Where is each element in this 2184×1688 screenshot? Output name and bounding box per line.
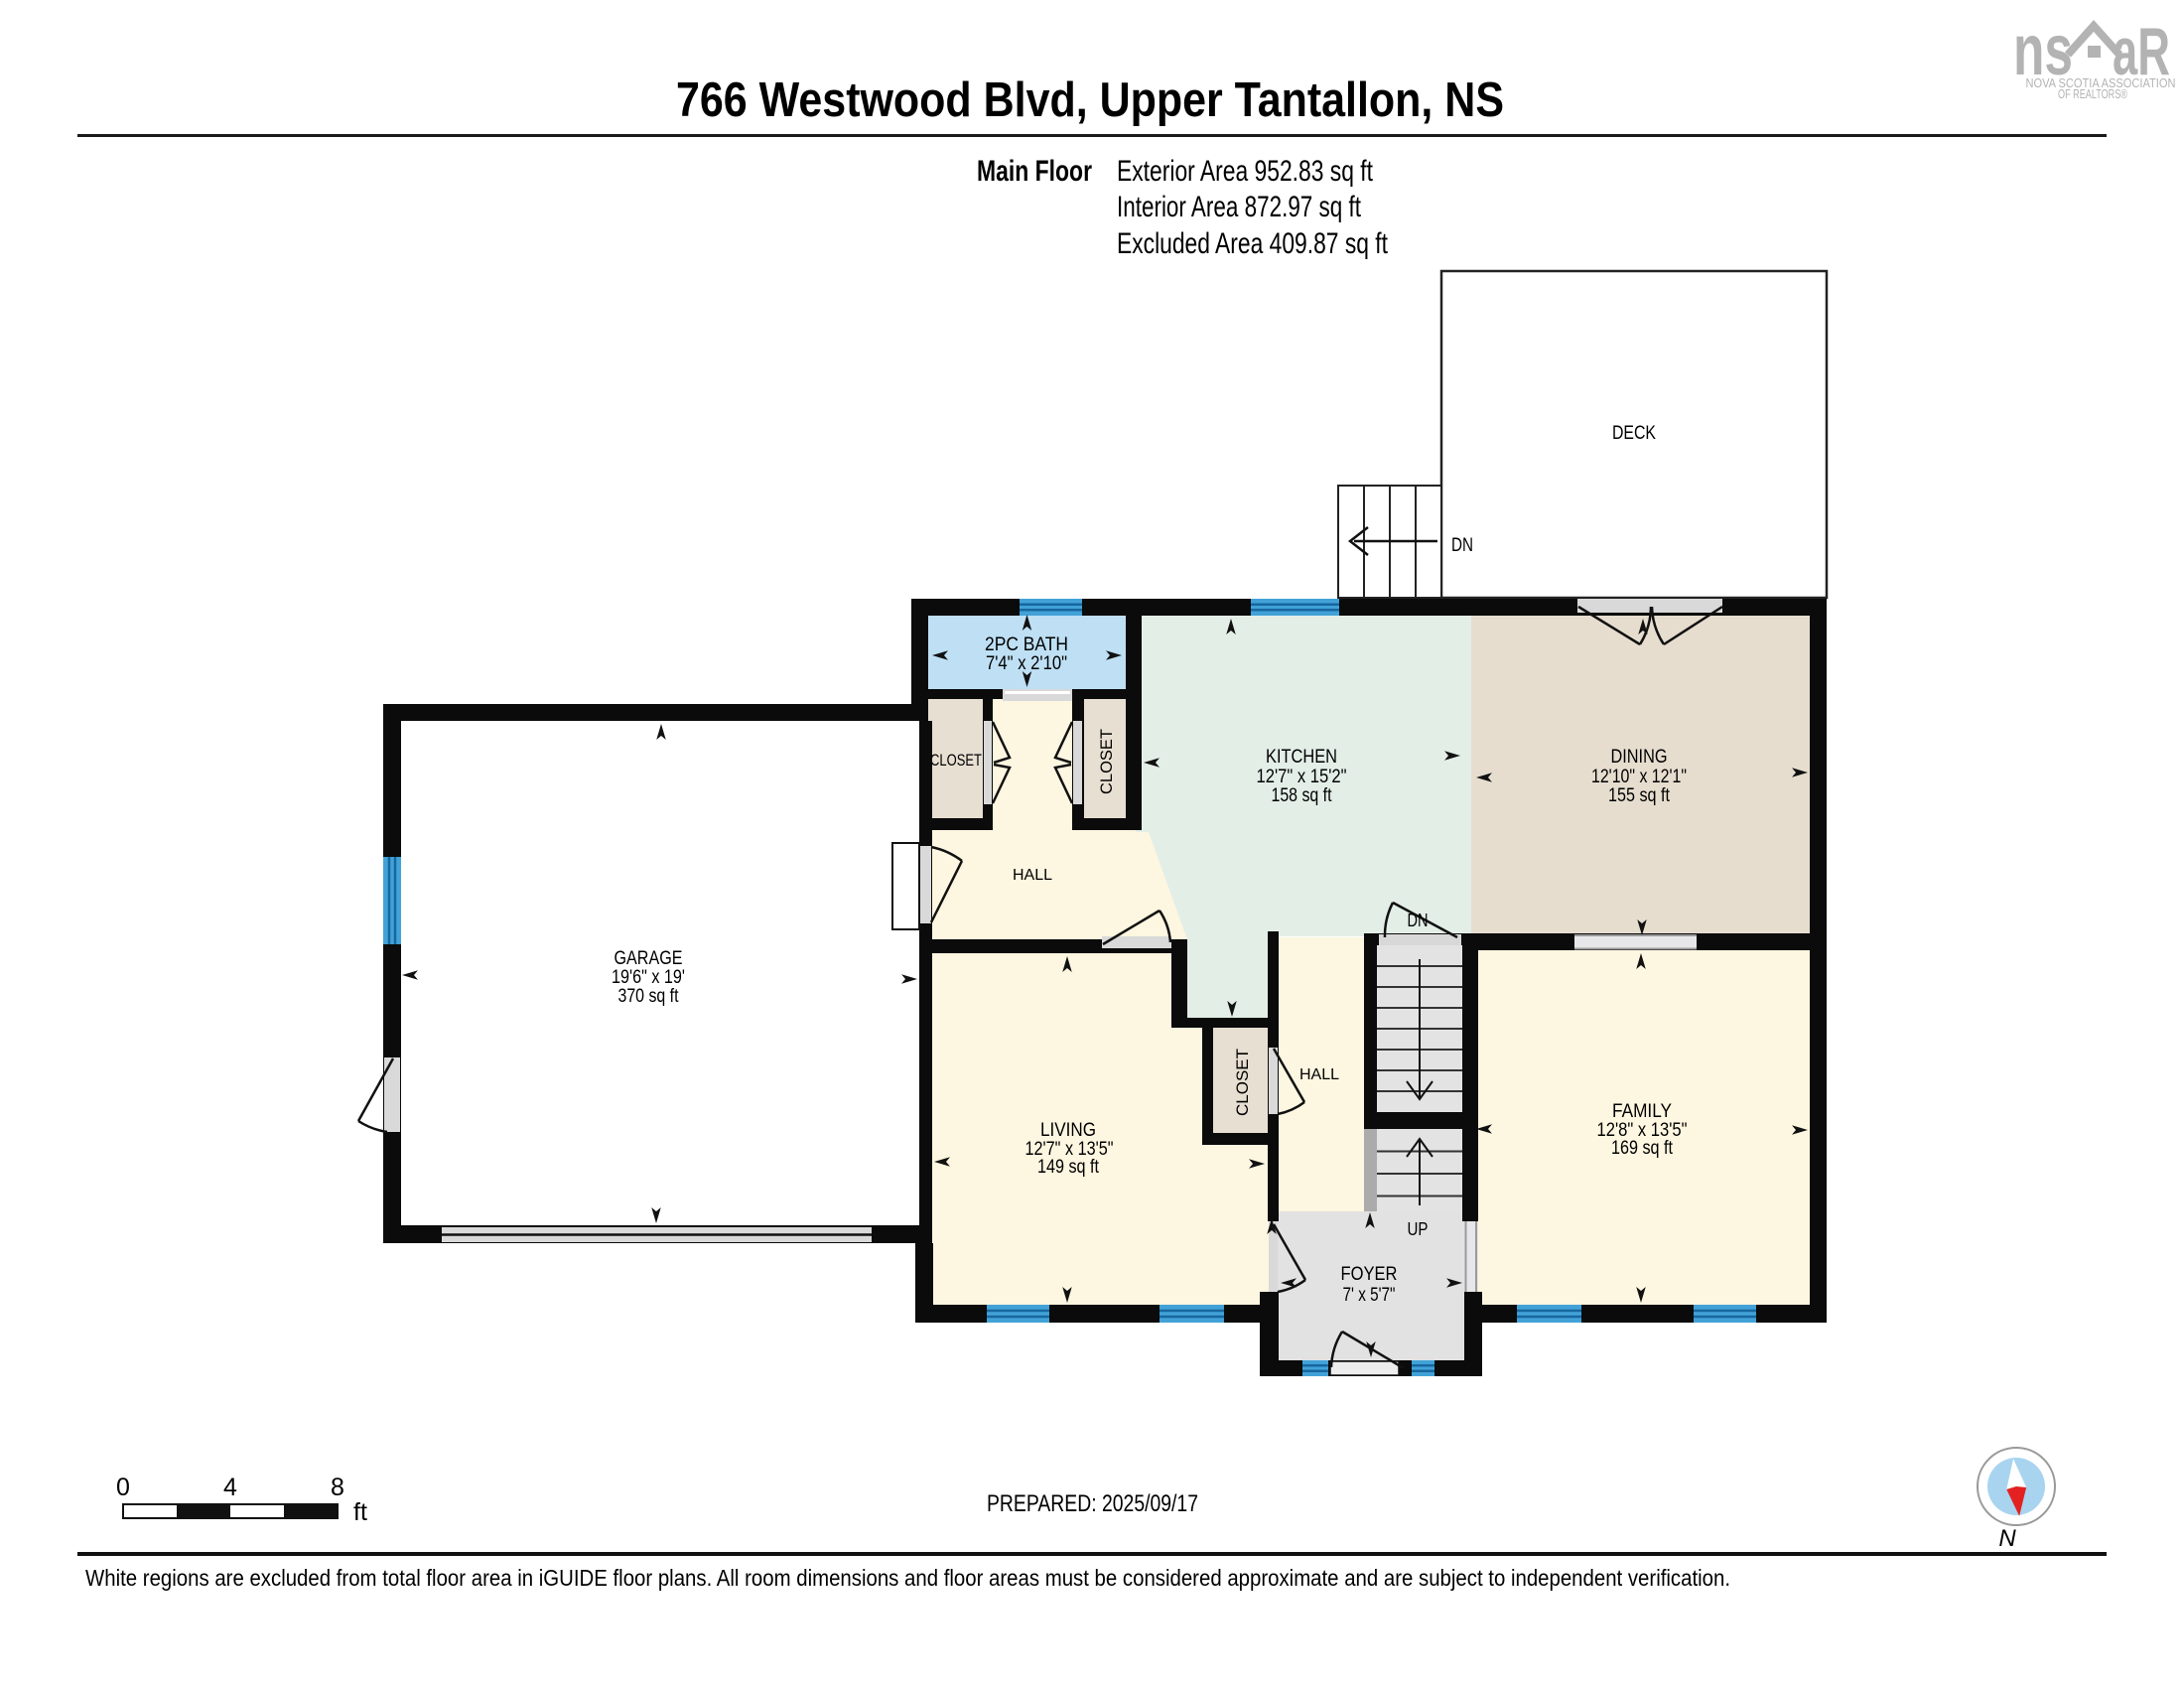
svg-text:Interior Area 872.97 sq ft: Interior Area 872.97 sq ft [1117, 191, 1361, 223]
svg-text:4: 4 [223, 1474, 237, 1501]
svg-text:DINING: DINING [1611, 747, 1668, 768]
svg-text:HALL: HALL [1013, 867, 1052, 884]
svg-text:CLOSET: CLOSET [1233, 1049, 1252, 1116]
svg-text:2PC BATH: 2PC BATH [985, 634, 1068, 655]
svg-text:155 sq ft: 155 sq ft [1608, 785, 1671, 806]
svg-text:DN: DN [1408, 911, 1429, 930]
svg-text:PREPARED: 2025/09/17: PREPARED: 2025/09/17 [987, 1490, 1198, 1517]
svg-text:149 sq ft: 149 sq ft [1037, 1157, 1100, 1178]
svg-text:LIVING: LIVING [1040, 1120, 1096, 1141]
svg-text:UP: UP [1408, 1219, 1429, 1239]
svg-text:FOYER: FOYER [1341, 1264, 1398, 1285]
svg-text:DECK: DECK [1612, 423, 1656, 444]
svg-text:7' x 5'7": 7' x 5'7" [1343, 1285, 1396, 1306]
svg-text:KITCHEN: KITCHEN [1266, 747, 1337, 768]
svg-text:ft: ft [353, 1498, 367, 1526]
svg-text:N: N [1998, 1525, 2016, 1552]
svg-text:Main Floor: Main Floor [977, 155, 1092, 188]
svg-text:CLOSET: CLOSET [930, 752, 982, 770]
svg-text:Exterior Area 952.83 sq ft: Exterior Area 952.83 sq ft [1117, 155, 1374, 188]
svg-text:370 sq ft: 370 sq ft [618, 986, 680, 1007]
svg-text:HALL: HALL [1299, 1066, 1339, 1083]
svg-text:158 sq ft: 158 sq ft [1272, 785, 1333, 806]
svg-text:19'6" x 19': 19'6" x 19' [612, 967, 685, 988]
svg-text:766 Westwood Blvd, Upper Tanta: 766 Westwood Blvd, Upper Tantallon, NS [676, 73, 1504, 127]
svg-text:White regions are excluded fro: White regions are excluded from total fl… [85, 1565, 1730, 1591]
svg-text:169 sq ft: 169 sq ft [1611, 1138, 1674, 1159]
svg-text:0: 0 [116, 1474, 130, 1501]
svg-text:GARAGE: GARAGE [614, 948, 683, 969]
svg-text:Excluded Area 409.87 sq ft: Excluded Area 409.87 sq ft [1117, 227, 1388, 260]
svg-text:7'4" x 2'10": 7'4" x 2'10" [986, 653, 1067, 674]
svg-text:FAMILY: FAMILY [1612, 1101, 1672, 1122]
svg-text:12'7" x 15'2": 12'7" x 15'2" [1257, 767, 1347, 787]
svg-text:OF REALTORS®: OF REALTORS® [2058, 87, 2128, 101]
svg-text:12'10" x 12'1": 12'10" x 12'1" [1591, 767, 1687, 787]
svg-text:DN: DN [1451, 535, 1473, 556]
svg-text:8: 8 [331, 1474, 344, 1501]
svg-text:CLOSET: CLOSET [1097, 729, 1116, 794]
